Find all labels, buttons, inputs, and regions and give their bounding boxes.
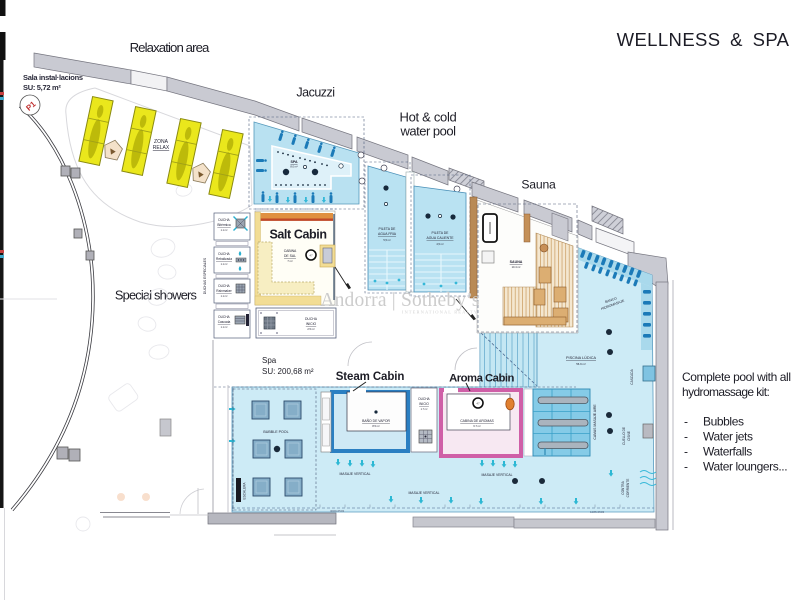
svg-text:Cascada: Cascada <box>218 320 231 324</box>
svg-text:CABINA: CABINA <box>284 249 297 253</box>
svg-text:DUCHAS ESPECIALES: DUCHAS ESPECIALES <box>203 257 207 294</box>
svg-text:water pool: water pool <box>400 124 457 139</box>
svg-text:BAÑO DE VAPOR: BAÑO DE VAPOR <box>362 418 390 423</box>
svg-text:PILETA DE: PILETA DE <box>379 227 397 231</box>
svg-text:4,5 m²: 4,5 m² <box>436 242 443 246</box>
svg-text:DE SAL: DE SAL <box>284 254 296 258</box>
svg-text:PISCINA LÚDICA: PISCINA LÚDICA <box>566 355 596 360</box>
svg-text:1.1 m²: 1.1 m² <box>221 295 228 298</box>
svg-text:-: - <box>684 460 688 474</box>
svg-text:1.1 m²: 1.1 m² <box>221 326 228 329</box>
svg-text:Rainmaker: Rainmaker <box>216 289 232 293</box>
svg-text:Hot & cold: Hot & cold <box>400 110 457 125</box>
svg-text:CASCADA: CASCADA <box>630 368 634 384</box>
svg-text:DUCHA: DUCHA <box>305 317 318 321</box>
svg-text:SU: 5,72 m²: SU: 5,72 m² <box>23 83 61 92</box>
svg-text:RELAX: RELAX <box>153 145 170 151</box>
svg-text:Aroma Cabin: Aroma Cabin <box>449 373 514 385</box>
svg-text:Waterfalls: Waterfalls <box>703 445 752 459</box>
svg-text:1085.6503: 1085.6503 <box>590 510 605 514</box>
svg-text:SAUNA: SAUNA <box>510 260 523 264</box>
svg-text:BUBBLE POOL: BUBBLE POOL <box>263 430 288 434</box>
svg-text:47: 47 <box>309 254 313 258</box>
svg-text:MASAJE VERTICAL: MASAJE VERTICAL <box>481 473 512 477</box>
svg-text:-: - <box>684 430 688 444</box>
svg-text:Complete pool with all: Complete pool with all <box>682 370 791 384</box>
svg-text:CISNE: CISNE <box>627 431 631 441</box>
svg-text:CUELLO DE: CUELLO DE <box>622 427 626 445</box>
svg-text:47: 47 <box>476 402 480 406</box>
svg-text:AGUA CALIENTE: AGUA CALIENTE <box>427 236 455 240</box>
svg-text:ESCALERA: ESCALERA <box>243 482 247 500</box>
svg-text:Sala instal·lacions: Sala instal·lacions <box>23 73 83 82</box>
svg-text:AGUA FRIA: AGUA FRIA <box>378 232 397 236</box>
svg-text:SU: 200,68 m²: SU: 200,68 m² <box>262 367 314 376</box>
svg-text:Sauna: Sauna <box>521 178 556 192</box>
svg-text:1.7 m²: 1.7 m² <box>421 408 428 411</box>
svg-text:8.5 m²: 8.5 m² <box>372 424 379 428</box>
svg-text:CONTRA: CONTRA <box>621 480 625 494</box>
svg-text:DUCHA: DUCHA <box>218 315 230 319</box>
svg-text:hydromassage kit:: hydromassage kit: <box>682 385 769 399</box>
svg-text:1.1 m²: 1.1 m² <box>221 229 228 232</box>
svg-text:Jacuzzi: Jacuzzi <box>296 86 334 100</box>
svg-text:Andorra | Sotheby’s: Andorra | Sotheby’s <box>320 290 479 311</box>
svg-text:10.4 m²: 10.4 m² <box>512 265 521 269</box>
svg-text:MASAJE VERTICAL: MASAJE VERTICAL <box>408 491 439 495</box>
svg-text:DUCHA: DUCHA <box>218 284 230 288</box>
svg-text:Rebalizada: Rebalizada <box>216 257 232 261</box>
svg-text:3069.6503: 3069.6503 <box>330 509 345 513</box>
svg-text:CAMAS MASAJE AIRE: CAMAS MASAJE AIRE <box>593 404 597 440</box>
svg-text:2.5 m²: 2.5 m² <box>307 327 314 331</box>
svg-text:Salt Cabin: Salt Cabin <box>269 228 326 242</box>
svg-text:Water loungers...: Water loungers... <box>703 460 787 474</box>
svg-text:8.0 m²: 8.0 m² <box>290 165 297 169</box>
svg-text:-: - <box>684 445 688 459</box>
svg-text:7 m²: 7 m² <box>287 259 292 263</box>
svg-text:CORRIENTE: CORRIENTE <box>626 479 630 498</box>
svg-text:Water jets: Water jets <box>703 430 753 444</box>
svg-text:INICIO: INICIO <box>419 402 429 406</box>
svg-text:1.1 m²: 1.1 m² <box>221 263 228 266</box>
svg-text:Steam Cabin: Steam Cabin <box>336 371 405 383</box>
svg-text:DUCHA: DUCHA <box>418 397 430 401</box>
svg-text:SPA: SPA <box>290 160 298 164</box>
svg-text:INICIO: INICIO <box>306 322 317 326</box>
svg-text:5,5 m²: 5,5 m² <box>383 238 390 242</box>
svg-text:CABINA DE AROMAS: CABINA DE AROMAS <box>460 419 494 423</box>
svg-text:Bitérmica: Bitérmica <box>217 223 231 227</box>
svg-text:Relaxation area: Relaxation area <box>130 40 210 55</box>
svg-text:DUCHA: DUCHA <box>218 218 230 222</box>
svg-text:INTERNATIONAL REALTY: INTERNATIONAL REALTY <box>402 310 478 315</box>
svg-text:6.7 m²: 6.7 m² <box>473 424 480 428</box>
svg-text:-: - <box>684 415 688 429</box>
svg-text:PILETA DE: PILETA DE <box>432 231 450 235</box>
svg-text:56.9 m²: 56.9 m² <box>576 362 586 366</box>
svg-text:Bubbles: Bubbles <box>703 415 744 429</box>
svg-text:Spa: Spa <box>262 356 277 365</box>
svg-text:WELLNESS & SPA: WELLNESS & SPA <box>617 29 790 50</box>
svg-text:DUCHA: DUCHA <box>218 252 230 256</box>
svg-text:MASAJE VERTICAL: MASAJE VERTICAL <box>339 472 370 476</box>
